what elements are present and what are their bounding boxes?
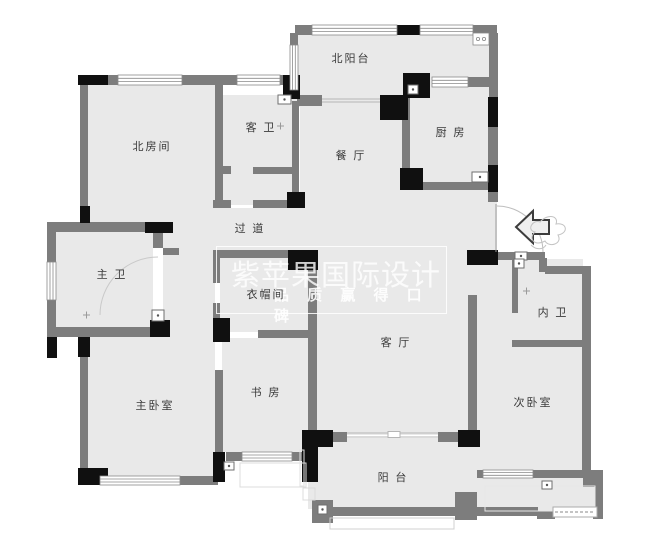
floor-plan-drawing — [0, 0, 650, 556]
entrance-arrow-icon — [516, 211, 565, 249]
floor-plan-page: 紫苹果国际设计 品 质 赢 得 口 碑 北阳台北房间客 卫厨 房餐 厅过 道主 … — [0, 0, 650, 556]
corner-window-box — [473, 33, 489, 45]
